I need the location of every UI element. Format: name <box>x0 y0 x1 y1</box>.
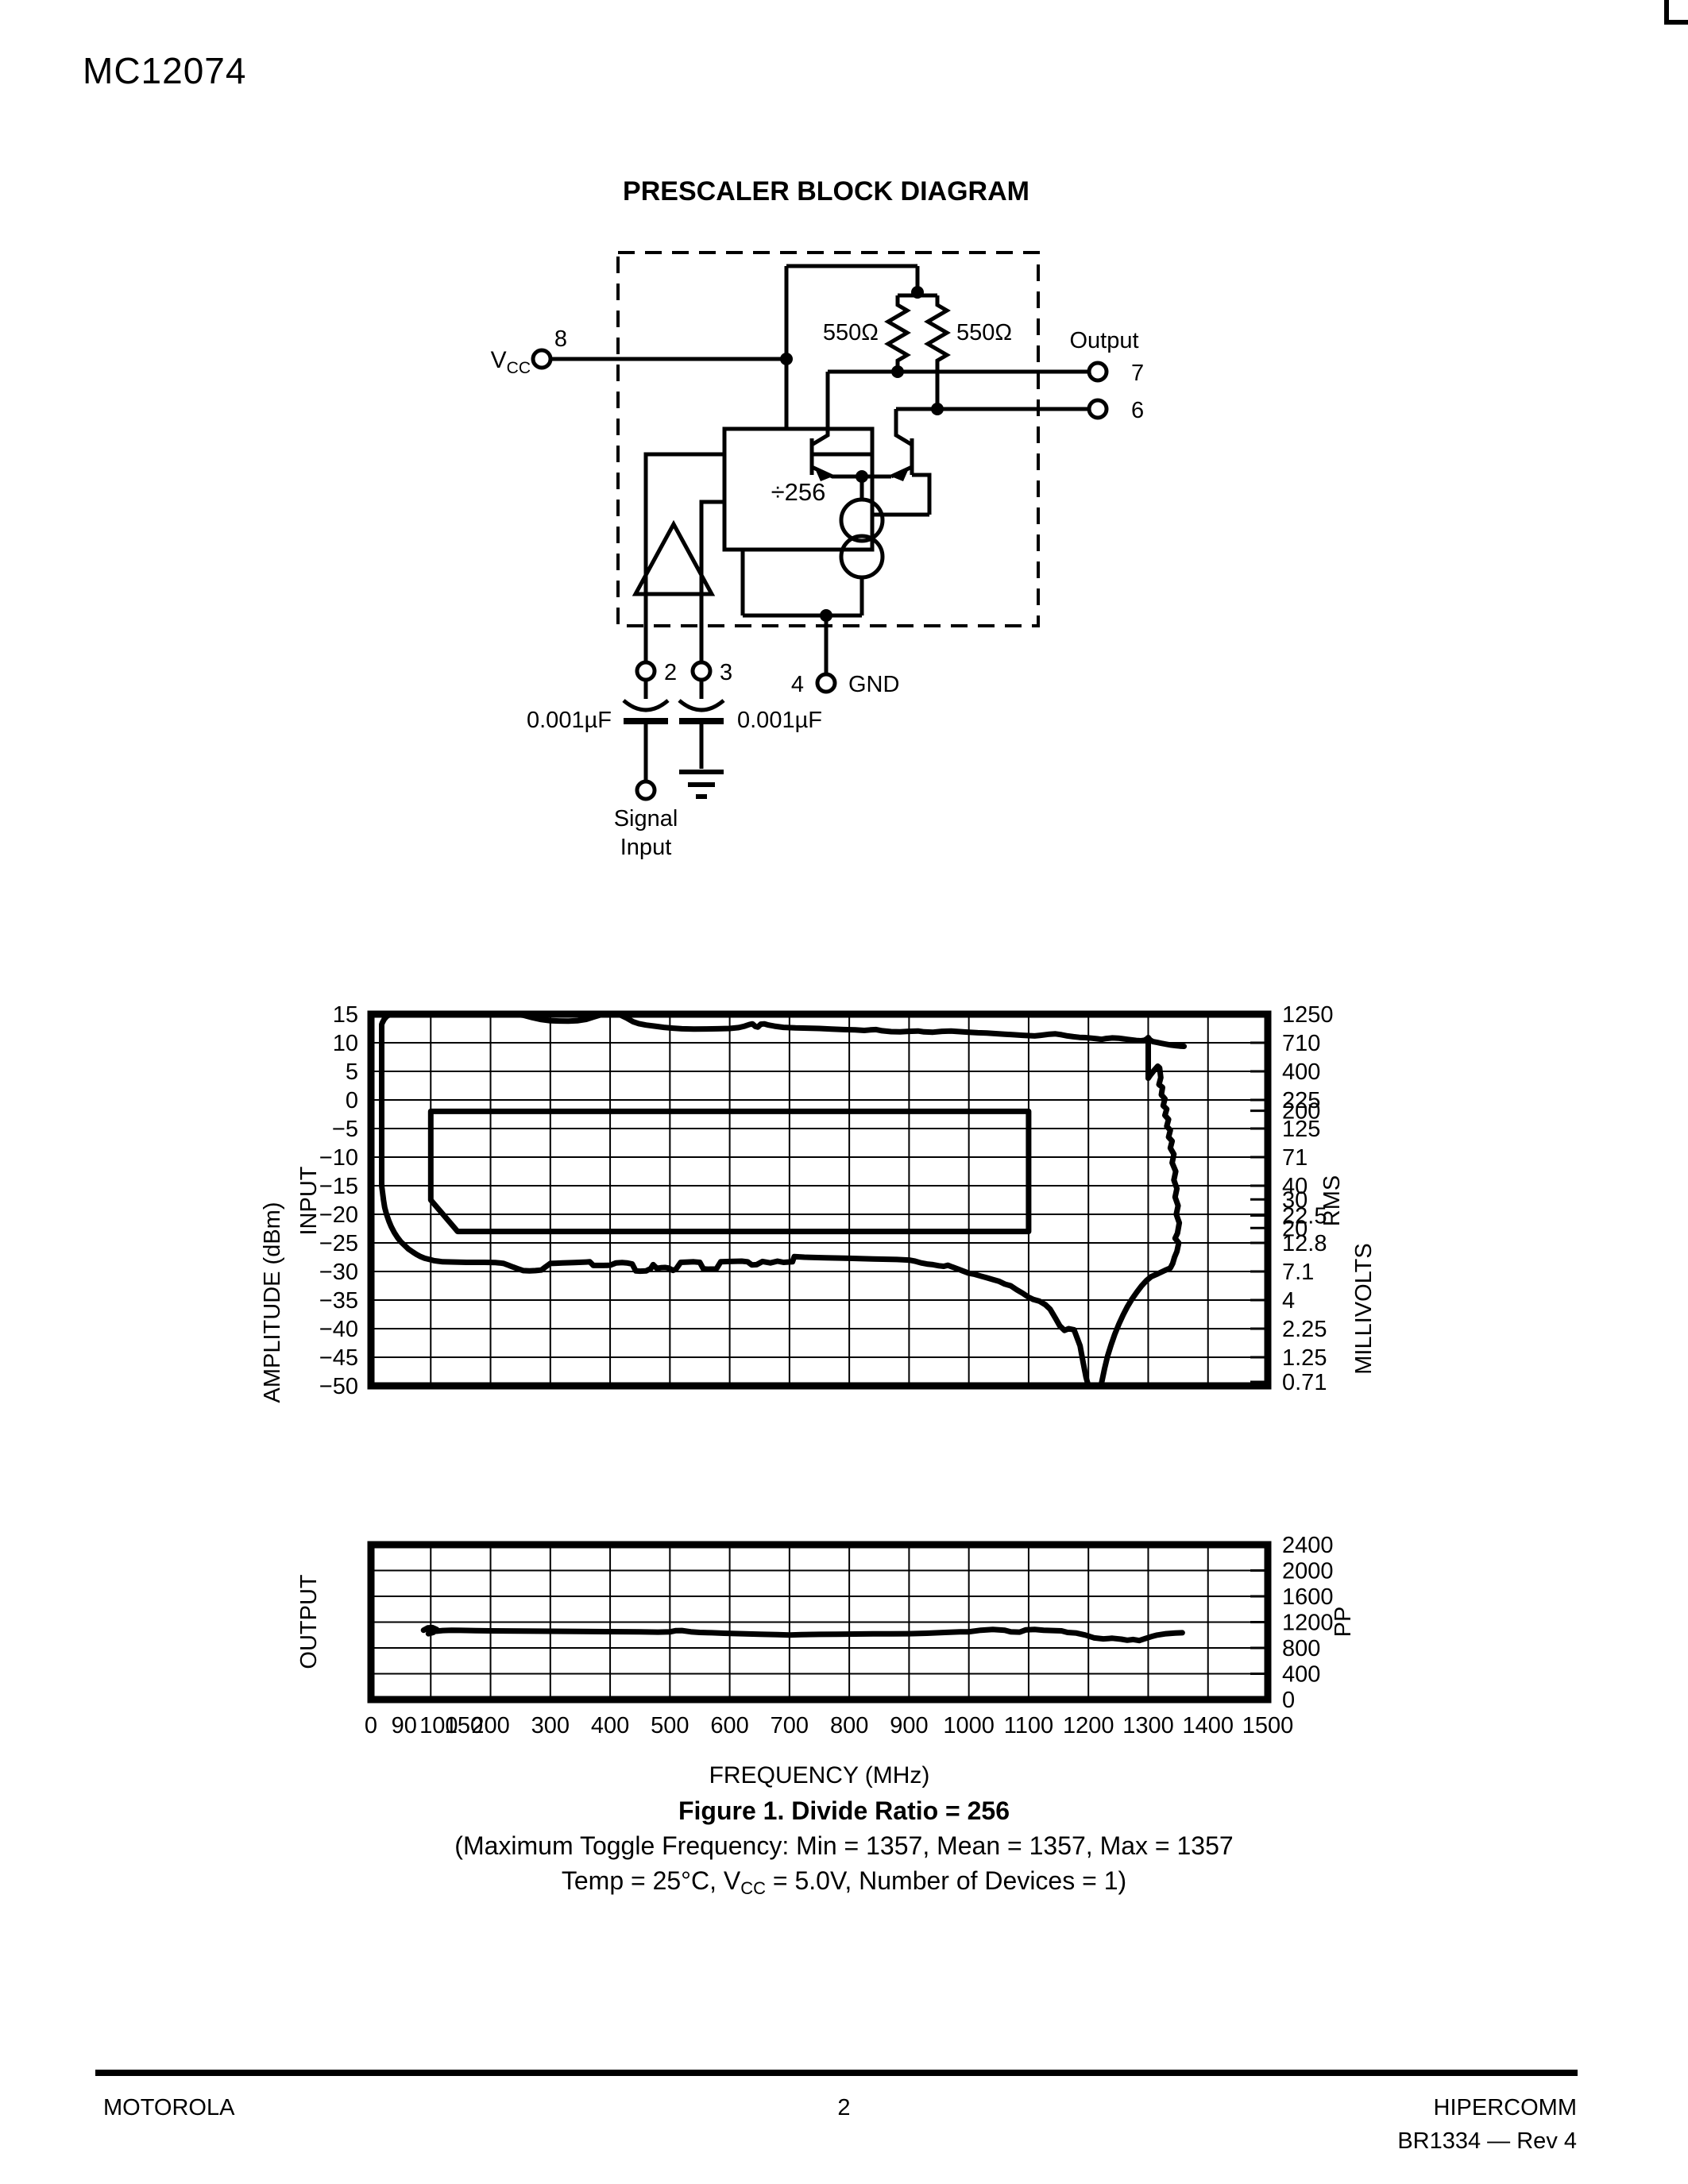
y-axis-tick-label-left: −25 <box>319 1231 358 1256</box>
figure-caption-line3: Temp = 25°C, VCC = 5.0V, Number of Devic… <box>0 1863 1688 1906</box>
x-axis-tick-label: 300 <box>531 1713 570 1738</box>
y-axis-tick-label-left: −40 <box>319 1317 358 1342</box>
y-axis-tick-label-left: −45 <box>319 1345 358 1371</box>
figure-caption-title: Figure 1. Divide Ratio = 256 <box>0 1793 1688 1828</box>
y-axis-tick-label-left: −20 <box>319 1202 358 1228</box>
doc-number: MC12074 <box>83 49 246 92</box>
current-source <box>841 500 883 615</box>
signal-input-label-line2: Input <box>620 835 672 860</box>
y-axis-tick-label-right: 710 <box>1282 1031 1320 1056</box>
y-axis-tick-label-right: 0 <box>1282 1688 1295 1713</box>
load-resistors <box>888 295 947 364</box>
pin3-terminal <box>693 662 710 680</box>
cap-left-label: 0.001µF <box>527 708 612 733</box>
y-axis-tick-label-left: −5 <box>332 1117 358 1142</box>
pin6-terminal <box>1089 400 1107 418</box>
ground-net <box>743 550 862 692</box>
divider-label: ÷256 <box>771 478 826 506</box>
y-axis-tick-label-right: 400 <box>1282 1662 1320 1688</box>
series-output-swing <box>423 1627 1182 1640</box>
coupling-capacitors <box>624 680 724 799</box>
x-axis-tick-label: 1100 <box>1004 1713 1053 1738</box>
plot-frame <box>371 1014 1268 1386</box>
y-axis-tick-label-left: 10 <box>333 1031 358 1056</box>
y-axis-tick-label-right: 1200 <box>1282 1611 1334 1636</box>
y-axis-tick-label-left: 0 <box>346 1088 358 1113</box>
pin6-label: 6 <box>1131 398 1144 423</box>
y-axis-tick-label-right: 1250 <box>1282 1002 1334 1028</box>
y-axis-tick-label-right: 800 <box>1282 1636 1320 1661</box>
y-axis-tick-label-right: 400 <box>1282 1059 1320 1085</box>
y-axis-tick-label-right: 2400 <box>1282 1533 1334 1558</box>
series-input-sensitivity-envelope <box>382 1014 1184 1386</box>
x-axis-tick-label: 700 <box>771 1713 809 1738</box>
signal-input-label-line1: Signal <box>614 806 678 832</box>
y-axis-tick-label-left: −15 <box>319 1174 358 1199</box>
figure-caption: Figure 1. Divide Ratio = 256 (Maximum To… <box>0 1793 1688 1906</box>
pin7-terminal <box>1089 363 1107 380</box>
y-axis-title-right: RMS <box>1319 1175 1345 1226</box>
y-axis-title-left: INPUT <box>296 1166 322 1235</box>
earth-ground-icon <box>679 772 724 797</box>
x-axis-tick-label: 600 <box>710 1713 748 1738</box>
pin4-label: 4 <box>791 672 804 697</box>
x-axis-tick-label: 1400 <box>1182 1713 1234 1738</box>
pin3-label: 3 <box>720 660 732 685</box>
x-axis-tick-label: 500 <box>651 1713 689 1738</box>
pin8-terminal <box>533 350 550 368</box>
y-axis-tick-label-left: −30 <box>319 1260 358 1285</box>
y-axis-title-right: PP <box>1331 1607 1356 1638</box>
cap-left-curved-plate <box>624 700 668 710</box>
y-axis-tick-label-right: 12.8 <box>1282 1231 1327 1256</box>
footer-brand: HIPERCOMM <box>1021 2095 1577 2121</box>
signal-input-terminal <box>637 781 655 799</box>
x-axis-tick-label: 90 <box>392 1713 417 1738</box>
resistor-right-zigzag <box>928 295 947 364</box>
y-axis-tick-label-left: 15 <box>333 1002 358 1028</box>
y-axis-tick-label-left: −10 <box>319 1145 358 1171</box>
x-axis-tick-label: 800 <box>830 1713 868 1738</box>
pin8-label: 8 <box>554 326 567 352</box>
diagram-title: PRESCALER BLOCK DIAGRAM <box>445 176 1207 207</box>
y-axis-tick-label-right: 71 <box>1282 1145 1308 1171</box>
vcc-net <box>533 266 917 429</box>
corner-mark <box>1652 0 1688 36</box>
pin4-terminal <box>817 674 835 692</box>
footer-doc-rev: BR1334 — Rev 4 <box>1021 2128 1577 2155</box>
y-axis-title-left: OUTPUT <box>296 1574 322 1669</box>
datasheet-page: MC12074 PRESCALER BLOCK DIAGRAM <box>0 0 1688 2184</box>
resistor-right-label: 550Ω <box>956 320 1012 345</box>
y-axis-tick-label-right: 1.25 <box>1282 1345 1327 1371</box>
y-axis-tick-label-left: −50 <box>319 1374 358 1399</box>
ic-boundary-dashed-box <box>618 253 1038 626</box>
cap-right-label: 0.001µF <box>737 708 822 733</box>
input-amplitude-chart: 151050−5−10−15−20−25−30−35−40−45−5012507… <box>222 993 1414 1414</box>
output-label: Output <box>1069 328 1138 353</box>
y-axis-title-left: AMPLITUDE (dBm) <box>260 1202 285 1403</box>
x-axis-tick-label: 1200 <box>1063 1713 1114 1738</box>
x-axis-title: FREQUENCY (MHz) <box>709 1762 930 1788</box>
y-axis-tick-label-right: 0.71 <box>1282 1370 1327 1395</box>
y-axis-tick-label-right: 7.1 <box>1282 1260 1314 1285</box>
pin2-label: 2 <box>664 660 677 685</box>
prescaler-block-diagram: VCC 8 550Ω 550Ω ÷256 Output 7 6 2 3 4 GN… <box>445 238 1239 889</box>
amp-feedback-wires <box>646 454 724 594</box>
x-axis-tick-label: 200 <box>471 1713 509 1738</box>
x-axis-tick-label: 1300 <box>1122 1713 1174 1738</box>
y-axis-tick-label-right: 2000 <box>1282 1559 1334 1584</box>
figure-caption-line2: (Maximum Toggle Frequency: Min = 1357, M… <box>0 1828 1688 1863</box>
y-axis-tick-label-left: −35 <box>319 1288 358 1314</box>
x-axis-tick-label: 900 <box>890 1713 928 1738</box>
x-axis-tick-label: 1500 <box>1242 1713 1294 1738</box>
output6-net <box>896 364 1107 445</box>
vcc-label: VCC <box>491 347 531 377</box>
cap-right-curved-plate <box>679 700 724 710</box>
resistor-left-zigzag <box>888 295 907 364</box>
gnd-label: GND <box>848 672 899 697</box>
y-axis-tick-label-right: 4 <box>1282 1288 1295 1314</box>
x-axis-tick-label: 0 <box>365 1713 377 1738</box>
pin7-label: 7 <box>1131 361 1144 386</box>
y-axis-tick-label-right: 125 <box>1282 1117 1320 1142</box>
y-axis-tick-label-left: 5 <box>346 1059 358 1085</box>
resistor-left-label: 550Ω <box>823 320 879 345</box>
output-swing-chart: 2400200016001200800400009010015020030040… <box>222 1529 1414 1791</box>
y-axis-title-right: MILLIVOLTS <box>1351 1243 1377 1374</box>
y-axis-tick-label-right: 1600 <box>1282 1584 1334 1610</box>
footer-rule <box>95 2070 1578 2076</box>
output7-net <box>812 363 1107 445</box>
x-axis-tick-label: 1000 <box>943 1713 995 1738</box>
pin2-terminal <box>637 662 655 680</box>
x-axis-tick-label: 400 <box>591 1713 629 1738</box>
y-axis-tick-label-right: 2.25 <box>1282 1317 1327 1342</box>
